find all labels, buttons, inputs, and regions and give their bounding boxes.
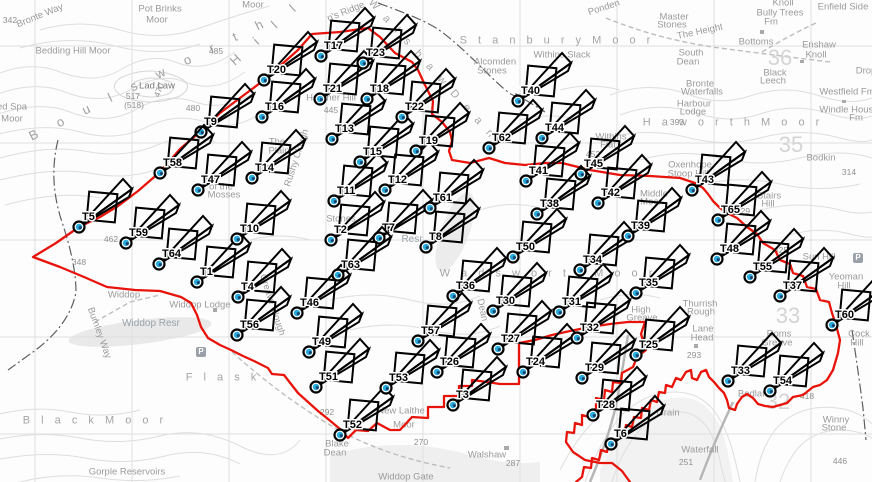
turbine-label-t46: T46: [300, 297, 319, 309]
turbine-label-t51: T51: [319, 371, 338, 383]
turbine-label-t47: T47: [201, 174, 220, 186]
turbine-label-t28: T28: [596, 399, 615, 411]
turbine-label-t18: T18: [370, 83, 389, 95]
turbine-label-t48: T48: [720, 243, 739, 255]
turbine-marker-t60[interactable]: [827, 277, 872, 331]
turbine-label-t27: T27: [501, 333, 520, 345]
turbine-marker-t53[interactable]: [381, 340, 440, 394]
turbine-label-t60: T60: [835, 309, 854, 321]
turbine-label-t30: T30: [496, 295, 515, 307]
turbine-label-t12: T12: [388, 174, 407, 186]
turbine-label-t62: T62: [492, 132, 511, 144]
turbine-markers-layer: T1T2T3T4T5T6T7T8T9T10T11T12T13T14T15T16T…: [74, 8, 872, 450]
turbine-label-t37: T37: [783, 280, 802, 292]
turbine-label-t50: T50: [516, 241, 535, 253]
turbine-label-t45: T45: [584, 158, 603, 170]
turbine-label-t1: T1: [200, 266, 213, 278]
turbine-label-t2: T2: [334, 224, 347, 236]
turbine-marker-t26[interactable]: [432, 324, 491, 378]
turbine-marker-t5[interactable]: [74, 179, 133, 233]
turbine-label-t16: T16: [265, 101, 284, 113]
turbine-marker-t49[interactable]: [304, 304, 363, 358]
turbine-label-t41: T41: [529, 165, 548, 177]
turbine-label-t36: T36: [456, 280, 475, 292]
turbine-label-t29: T29: [585, 362, 604, 374]
turbine-marker-t27[interactable]: [493, 301, 552, 355]
map-canvas[interactable]: 342Bronte WayPot BrinksMoorMoorBedding H…: [0, 0, 872, 482]
turbine-label-t56: T56: [240, 319, 259, 331]
turbine-marker-t13[interactable]: [327, 91, 386, 145]
turbine-label-t21: T21: [323, 83, 342, 95]
turbine-label-t53: T53: [389, 372, 408, 384]
turbine-label-t14: T14: [255, 162, 275, 174]
turbine-label-t63: T63: [341, 259, 360, 271]
turbine-label-t20: T20: [267, 64, 286, 76]
turbine-marker-t65[interactable]: [713, 172, 772, 226]
turbine-label-t39: T39: [631, 220, 650, 232]
turbine-marker-t10[interactable]: [232, 191, 291, 245]
turbine-label-t40: T40: [521, 85, 540, 97]
turbine-label-t55: T55: [753, 261, 772, 273]
turbine-marker-t28[interactable]: [588, 367, 647, 421]
turbine-label-t54: T54: [773, 375, 793, 387]
turbine-label-t19: T19: [419, 135, 438, 147]
turbine-marker-t47[interactable]: [193, 142, 252, 196]
turbine-label-t38: T38: [540, 198, 559, 210]
turbine-label-t59: T59: [129, 227, 148, 239]
turbine-label-t15: T15: [363, 146, 382, 158]
turbine-label-t49: T49: [312, 336, 331, 348]
turbine-label-t3: T3: [456, 389, 469, 401]
turbine-marker-t29[interactable]: [577, 330, 636, 384]
turbine-label-t23: T23: [366, 47, 385, 59]
turbine-label-t31: T31: [562, 296, 581, 308]
turbine-label-t13: T13: [335, 123, 354, 135]
turbine-label-t11: T11: [337, 185, 355, 197]
turbine-marker-t14[interactable]: [247, 130, 306, 184]
turbine-label-t52: T52: [343, 419, 362, 431]
turbine-label-t42: T42: [601, 187, 620, 199]
turbine-label-t57: T57: [421, 325, 440, 337]
turbine-marker-t52[interactable]: [335, 387, 394, 441]
turbine-marker-t7[interactable]: [374, 190, 433, 244]
turbine-marker-t54[interactable]: [765, 343, 824, 397]
turbine-label-t33: T33: [731, 365, 750, 377]
turbine-marker-t44[interactable]: [537, 90, 596, 144]
turbine-label-t10: T10: [240, 223, 259, 235]
turbine-marker-t12[interactable]: [380, 142, 439, 196]
turbine-label-t25: T25: [639, 339, 658, 351]
turbine-label-t8: T8: [429, 231, 442, 243]
turbine-label-t32: T32: [580, 322, 599, 334]
turbine-label-t44: T44: [545, 122, 565, 134]
turbine-label-t64: T64: [162, 248, 182, 260]
turbine-label-t26: T26: [440, 356, 459, 368]
turbine-marker-t25[interactable]: [631, 307, 690, 361]
turbine-label-t22: T22: [405, 101, 424, 113]
turbine-label-t24: T24: [526, 356, 546, 368]
turbine-label-t5: T5: [82, 211, 95, 223]
turbine-label-t35: T35: [639, 277, 658, 289]
turbine-marker-t36[interactable]: [448, 248, 507, 302]
turbine-marker-t40[interactable]: [513, 53, 572, 107]
turbine-label-t6: T6: [614, 428, 627, 440]
turbine-marker-t61[interactable]: [425, 160, 484, 214]
turbine-marker-t35[interactable]: [631, 245, 690, 299]
turbine-label-t17: T17: [324, 40, 343, 52]
turbine-marker-t4[interactable]: [233, 249, 292, 303]
turbine-label-t43: T43: [695, 174, 714, 186]
turbine-marker-t62[interactable]: [484, 100, 543, 154]
turbine-marker-t43[interactable]: [687, 142, 746, 196]
turbine-label-t58: T58: [163, 157, 182, 169]
turbine-marker-t34[interactable]: [575, 222, 634, 276]
overlay-layer: T1T2T3T4T5T6T7T8T9T10T11T12T13T14T15T16T…: [0, 0, 872, 482]
turbine-label-t34: T34: [583, 254, 603, 266]
turbine-marker-t39[interactable]: [623, 188, 682, 242]
turbine-label-t61: T61: [433, 192, 452, 204]
turbine-label-t4: T4: [241, 281, 255, 293]
turbine-label-t65: T65: [721, 204, 740, 216]
turbine-marker-t59[interactable]: [121, 195, 180, 249]
